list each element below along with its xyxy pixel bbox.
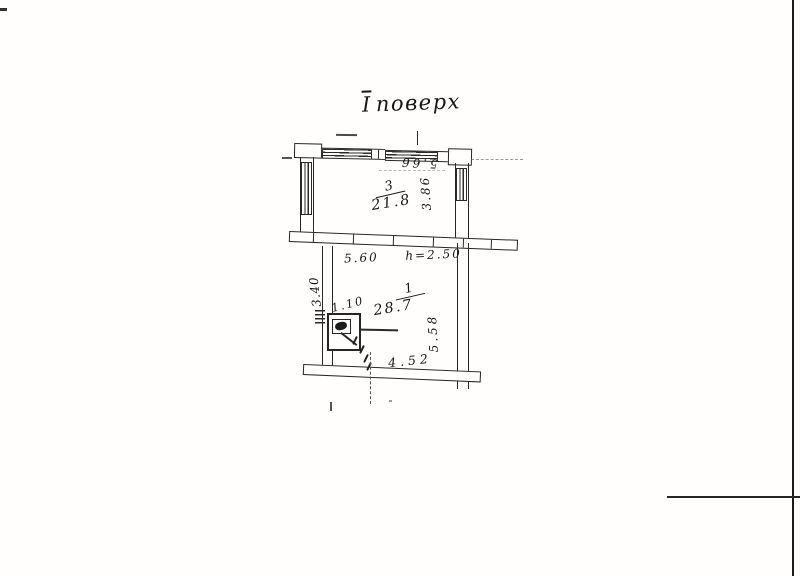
dimension-room1-height: h=2.50 xyxy=(405,246,462,262)
room3-right-wall xyxy=(455,163,469,239)
axis-line-right xyxy=(471,159,523,160)
page-rule-bottom-right xyxy=(667,496,800,498)
scan-speck xyxy=(389,400,392,402)
axis-tick-left xyxy=(282,157,292,159)
scan-mark-top-left xyxy=(0,8,7,11)
room1-area: 28.7 xyxy=(369,297,419,320)
page-edge-line-right xyxy=(792,0,794,576)
stove-symbol xyxy=(327,313,361,351)
dimension-room3-side: 3.86 xyxy=(418,175,434,211)
wall-segment xyxy=(438,151,448,162)
axis-tick-top xyxy=(417,131,418,145)
dimension-room1-right: 5.58 xyxy=(425,313,441,352)
room3-left-wall xyxy=(300,157,314,235)
room3-top-wall xyxy=(294,142,472,170)
floor-title: Іповерх xyxy=(362,89,462,116)
dimension-room3-top: 5.66 xyxy=(399,155,438,171)
axis-line-bottom xyxy=(370,352,371,404)
room1-right-wall xyxy=(457,243,469,389)
door-swing-dash xyxy=(363,354,369,363)
room3-label: 3 21.8 xyxy=(364,173,417,214)
room1-number: 1 xyxy=(392,279,425,300)
stove-leader-line xyxy=(361,329,398,331)
axis-tick-bottom xyxy=(330,402,332,411)
window-hatch xyxy=(322,148,372,160)
axis-faint-line xyxy=(379,170,445,171)
window-hatch xyxy=(301,162,312,215)
floor-number-numeral: І xyxy=(362,92,377,116)
wall-segment xyxy=(372,149,385,160)
wall-hatch-ticks xyxy=(315,310,325,325)
room3-area: 21.8 xyxy=(367,192,417,215)
dimension-room1-bottom: 4.52 xyxy=(387,351,432,371)
dimension-room1-top: 5.60 h=2.50 xyxy=(344,246,462,265)
dimension-room1-door: 1.10 xyxy=(330,293,366,315)
floor-title-word: поверх xyxy=(375,89,461,116)
floor-plan-sheet: Іповерх 5.66 3.86 3 21.8 xyxy=(0,0,800,576)
window-hatch xyxy=(456,168,467,201)
room1-label: 1 28.7 xyxy=(366,276,433,319)
axis-dash-left-of-tick xyxy=(336,134,357,137)
